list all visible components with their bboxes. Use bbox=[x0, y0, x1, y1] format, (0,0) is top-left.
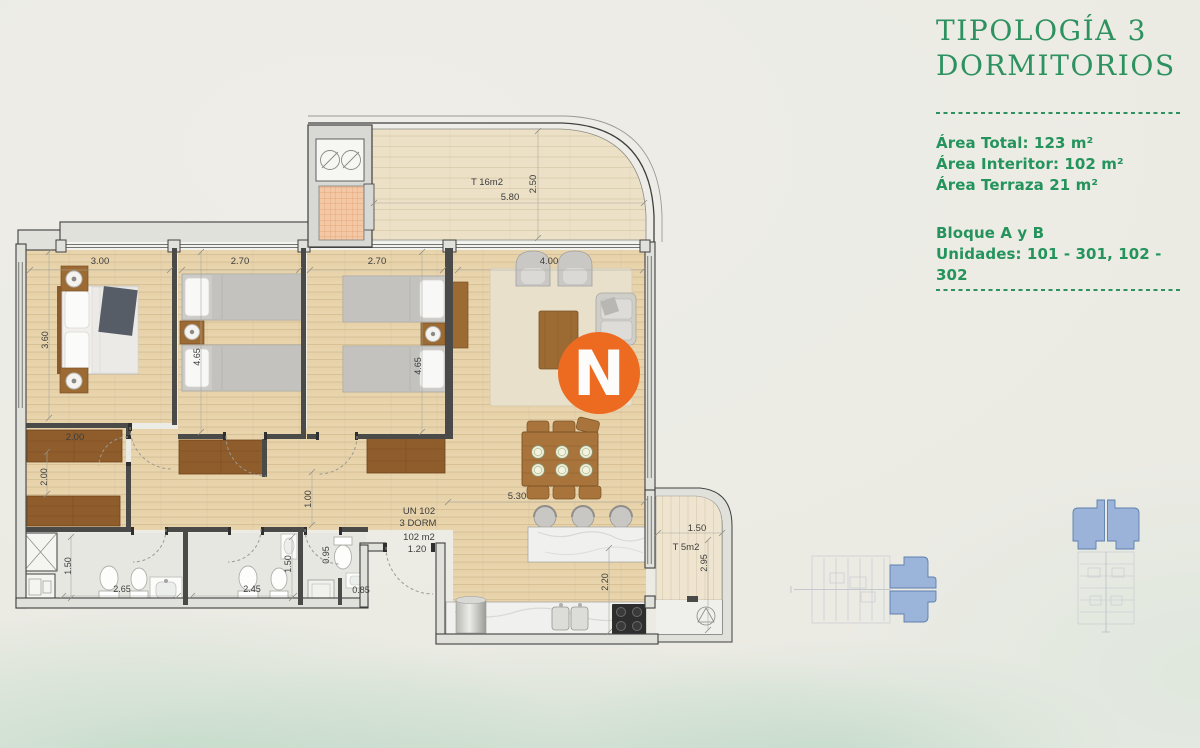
bloque-label: Bloque A y B bbox=[936, 223, 1182, 244]
area-total: Área Total: 123 m² bbox=[936, 133, 1124, 154]
page-title: TIPOLOGÍA 3 DORMITORIOS bbox=[936, 13, 1182, 83]
stove bbox=[612, 604, 646, 634]
title-line-1: TIPOLOGÍA 3 bbox=[936, 14, 1147, 47]
dim-bath2-width: 2.45 bbox=[243, 584, 261, 594]
highlighted-unit-left bbox=[1073, 500, 1105, 549]
divider-top bbox=[936, 112, 1181, 114]
unit-label-1: UN 102 bbox=[403, 506, 435, 517]
wall-left bbox=[16, 244, 26, 608]
dim-closet-depth: 2.00 bbox=[39, 468, 49, 486]
wall bbox=[436, 543, 445, 643]
area-summary: Área Total: 123 m² Área Interitor: 102 m… bbox=[936, 133, 1124, 196]
pillow bbox=[185, 278, 209, 316]
dim-living-width: 4.00 bbox=[540, 256, 559, 267]
toilet bbox=[99, 566, 119, 600]
dim-bath2-depth: 1.50 bbox=[283, 555, 293, 573]
wall-right bbox=[645, 242, 655, 494]
highlighted-unit-upper bbox=[890, 557, 936, 588]
unidades-label: Unidades: 101 - 301, 102 - 302 bbox=[936, 244, 1182, 286]
area-interior: Área Interitor: 102 m² bbox=[936, 154, 1124, 175]
dim-kitchen-width: 5.30 bbox=[508, 491, 527, 502]
wall-kitchen-bottom bbox=[436, 634, 658, 644]
dim-bath3-width: 0.85 bbox=[352, 585, 370, 595]
dim-closet-width: 2.00 bbox=[66, 432, 85, 443]
dim-hall-width: 1.00 bbox=[303, 490, 313, 508]
toilet bbox=[238, 566, 258, 600]
brochure-page: 3.60 bbox=[0, 0, 1200, 748]
keyplan-block-b bbox=[1073, 500, 1139, 632]
dim-terrace-top-depth: 2.50 bbox=[528, 175, 539, 194]
area-terraza: Área Terraza 21 m² bbox=[936, 175, 1124, 196]
vent-shaft bbox=[316, 139, 364, 181]
unit-label-3: 102 m2 bbox=[403, 532, 435, 543]
unit-label-4: 1.20 bbox=[408, 544, 427, 555]
chair bbox=[527, 486, 549, 499]
dim-bath1-depth: 1.50 bbox=[63, 557, 73, 575]
dining-group bbox=[522, 417, 601, 499]
divider-bottom bbox=[936, 289, 1181, 291]
dim-kitchen-depth: 2.20 bbox=[600, 573, 610, 591]
floor-plan: 3.60 bbox=[16, 116, 732, 644]
dim-bedroom3-depth: 4.65 bbox=[413, 357, 423, 375]
keyplan-block-a bbox=[791, 556, 936, 623]
wall bbox=[645, 490, 655, 568]
bar-stool bbox=[610, 506, 632, 528]
sideboard bbox=[452, 282, 468, 348]
block-info: Bloque A y B Unidades: 101 - 301, 102 - … bbox=[936, 223, 1182, 286]
title-line-2: DORMITORIOS bbox=[936, 49, 1176, 82]
label-terrace-side: T 5m2 bbox=[673, 542, 700, 553]
unit-label-2: 3 DORM bbox=[400, 518, 437, 529]
dim-bedroom3-width: 2.70 bbox=[368, 256, 387, 267]
dim-master-width: 3.00 bbox=[91, 256, 110, 267]
utility-box bbox=[24, 574, 55, 600]
bar-stool bbox=[572, 506, 594, 528]
highlighted-unit-lower bbox=[890, 591, 936, 622]
bar-stool bbox=[534, 506, 556, 528]
dim-master-depth: 3.60 bbox=[40, 331, 50, 349]
terrace-landing bbox=[656, 600, 722, 634]
logo-letter: N bbox=[573, 337, 625, 410]
dim-bedroom2-width: 2.70 bbox=[231, 256, 250, 267]
elevator-block bbox=[308, 125, 374, 247]
wall bbox=[645, 596, 655, 608]
pillow bbox=[420, 350, 444, 388]
label-terrace-top: T 16m2 bbox=[471, 177, 503, 188]
chair bbox=[579, 486, 601, 499]
wardrobe bbox=[27, 496, 120, 526]
logo-n-badge: N bbox=[558, 332, 640, 414]
dim-bath3-depth: 0.95 bbox=[321, 546, 331, 564]
terrace-side bbox=[652, 488, 732, 642]
water-heater bbox=[456, 600, 486, 633]
dim-terrace-side-depth: 2.95 bbox=[699, 554, 709, 572]
terrace-door-mark bbox=[687, 596, 698, 602]
wall bbox=[360, 545, 368, 607]
chair bbox=[553, 486, 575, 499]
wall bbox=[60, 222, 310, 244]
dim-bath1-width: 2.65 bbox=[113, 584, 131, 594]
elevator-shaft bbox=[319, 186, 364, 240]
armchair bbox=[558, 251, 592, 286]
dim-bedroom2-depth: 4.65 bbox=[192, 348, 202, 366]
dining-table bbox=[522, 432, 598, 486]
wall-bottom bbox=[16, 598, 368, 608]
dim-terrace-top-width: 5.80 bbox=[501, 192, 520, 203]
pillow bbox=[65, 332, 89, 371]
highlighted-unit-right bbox=[1108, 500, 1140, 549]
throw-blanket bbox=[98, 286, 137, 336]
pillow bbox=[65, 291, 89, 328]
pillow bbox=[420, 280, 444, 318]
dim-terrace-side-width: 1.50 bbox=[688, 523, 707, 534]
bidet bbox=[130, 568, 148, 600]
